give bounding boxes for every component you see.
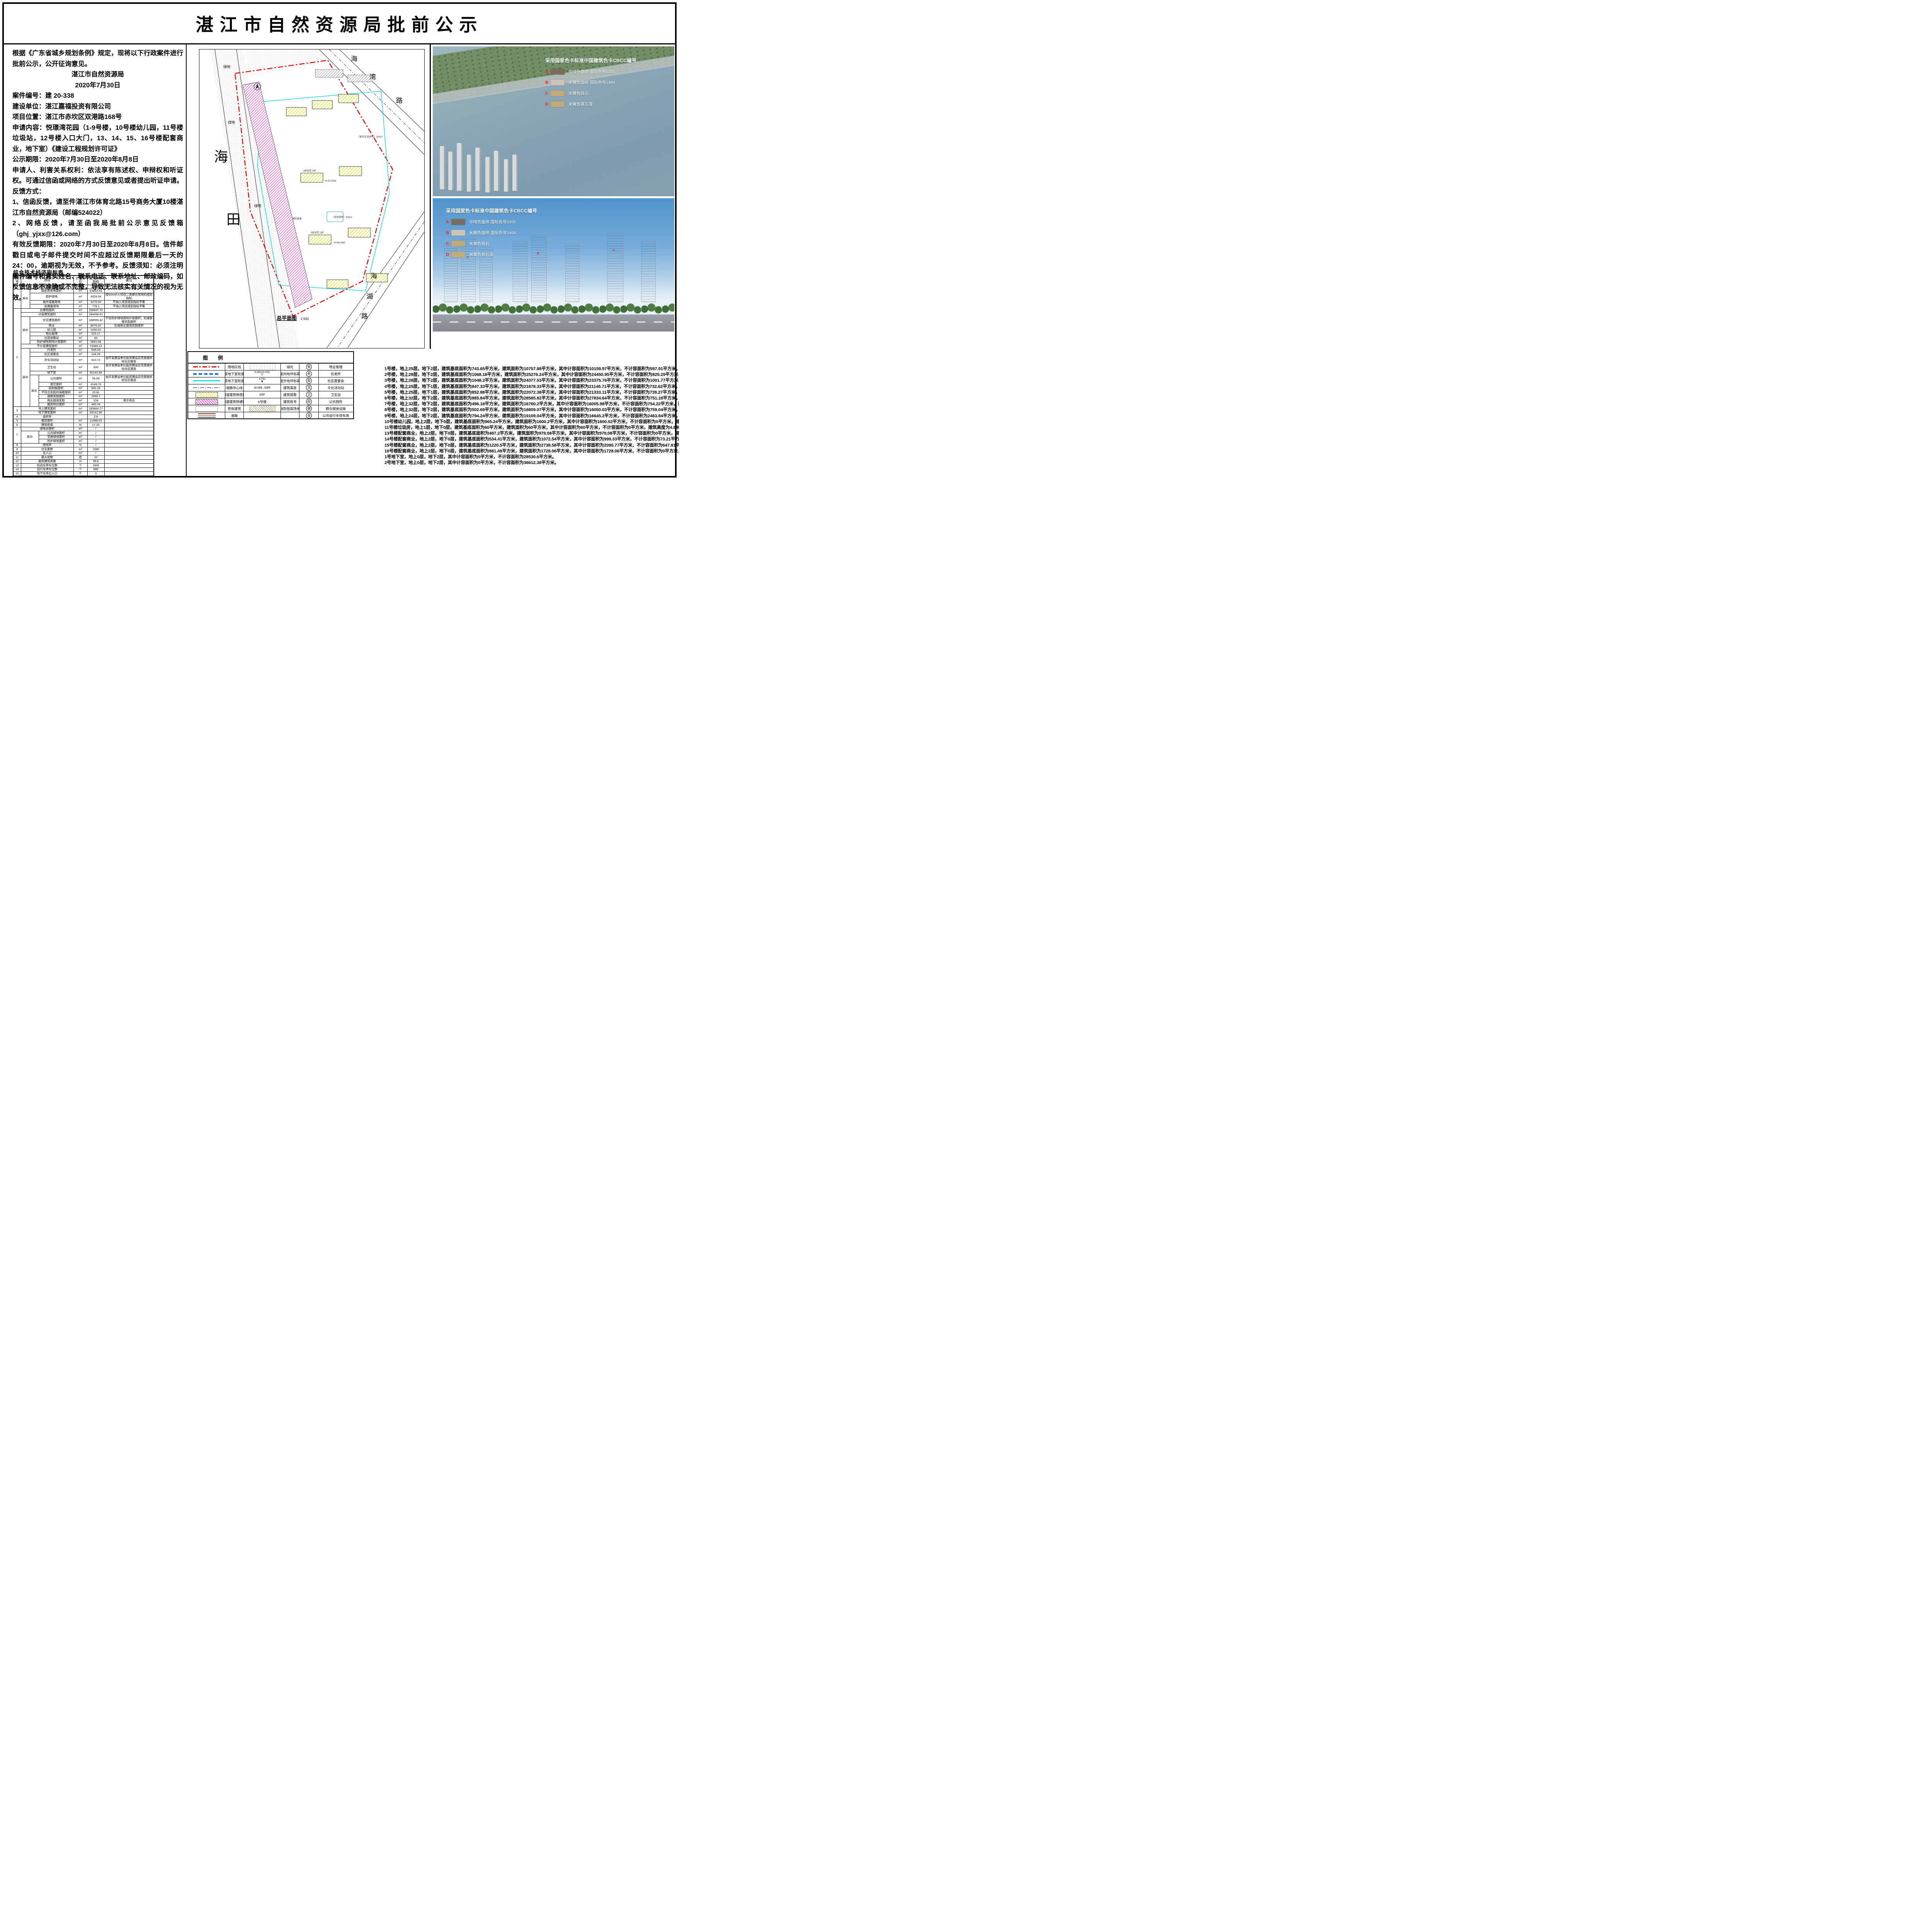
table-cell: 4029.34: [87, 293, 104, 300]
legend-label-cell: 拟建建筑物塔楼: [225, 391, 244, 398]
table-cell: m²: [73, 451, 87, 456]
plan-annotation: H=91.50M: [325, 180, 336, 182]
table-cell: m²: [73, 313, 87, 317]
legend-symbol-cell: 9.350(±0.000)▽: [244, 371, 281, 377]
table-cell: /: [87, 435, 104, 439]
color-legend: 采用国家色卡标准中国建筑色卡CBCC编号A中啡色面砖 国际色号0205B米黄色面…: [545, 56, 669, 112]
table-cell: [73, 415, 87, 419]
table-cell: 其中: [21, 348, 30, 407]
table-cell: [104, 415, 154, 419]
table-row: 防护绿地m²4029.34按50%计入项目二类居住用地的规划指标: [13, 293, 154, 300]
table-cell: 1900: [87, 464, 104, 468]
green-label: 绿地: [254, 204, 261, 208]
circled-facility-icon: 居: [306, 378, 312, 384]
table-cell: [104, 451, 154, 456]
street-trees: [433, 302, 674, 315]
table-cell: [104, 352, 154, 357]
legend-icon-cell: 老: [299, 371, 319, 377]
building-spec-line: 10号楼幼儿园，地上2层，地下0层，建筑基底面积为965.24平方米，建筑面积为…: [384, 419, 672, 425]
table-cell: 公共绿地面积: [39, 431, 73, 435]
table-cell: m²: [73, 435, 87, 439]
building-spec-line: 3号楼，地上28层，地下2层，建筑基底面积为1048.2平方米，建筑面积为243…: [384, 378, 672, 384]
notice-field-label: 申请内容：: [12, 124, 46, 131]
color-legend-title: 采用国家色卡标准中国建筑色卡CBCC编号: [545, 56, 669, 64]
color-legend-item: C米黄色挂石: [446, 241, 573, 246]
color-key-letter: A: [446, 220, 451, 224]
table-cell: 宅旁绿地面积: [39, 435, 73, 439]
table-cell: [104, 394, 154, 399]
table-cell: 城市道路用地: [30, 300, 73, 304]
tower: [475, 148, 481, 191]
legend-label-cell: 社区居委会: [319, 377, 353, 384]
table-cell: 193804.77: [87, 407, 104, 411]
table-cell: 其中: [30, 375, 39, 407]
legend-label-cell: 建筑层数: [281, 391, 299, 398]
color-label: 中啡色面砖 国际色号0205: [469, 219, 516, 225]
table-cell: /: [87, 443, 104, 447]
legend-label-cell: 群众健身设施: [319, 405, 353, 412]
legend-icon-cell: 居: [299, 377, 319, 384]
table-cell: 8076.92: [87, 324, 104, 328]
table-row: 地下建筑面积m²65142.98: [13, 411, 154, 415]
table-cell: [104, 403, 154, 407]
table-cell: m²: [73, 439, 87, 444]
table-cell: 14: [13, 467, 21, 472]
table-cell: 410.72: [87, 356, 104, 364]
level-triangle-icon: ▽: [261, 373, 263, 376]
table-cell: [104, 456, 154, 460]
notice-paragraph: 申请内容：悦璟湾花园（1-9号楼，10号楼幼儿园，11号楼垃圾站，12号楼入口大…: [12, 122, 183, 155]
table-row: 防护绿地用地计容面积m²5641.08: [13, 340, 154, 344]
table-cell: m²: [73, 419, 87, 423]
green-strip-north: [246, 49, 327, 76]
legend-symbol-dashdot: [193, 388, 220, 388]
table-row: 垃圾收集站m²60: [13, 336, 154, 340]
table-cell: 按50%计入项目二类居住用地的规划指标: [104, 293, 154, 300]
legend-icon-cell: 厕: [299, 398, 319, 405]
table-cell: [104, 371, 154, 375]
table-cell: [104, 435, 154, 439]
legend-label-cell: 卫生站: [319, 391, 353, 398]
table-row: 2总建筑面积m²258947.75: [13, 308, 154, 313]
notice-paragraph: 1、信函反馈，请至件湛江市体育北路15号商务大厦10楼湛江市自然资源局（邮编52…: [12, 197, 183, 218]
header: 湛江市自然资源局批前公示: [4, 4, 675, 43]
table-cell: [104, 439, 154, 444]
color-key-letter: D: [446, 252, 451, 257]
color-label: 米黄色真石漆: [469, 252, 493, 257]
parking-block: [315, 70, 343, 77]
table-cell: 其中: [21, 289, 30, 309]
table-row: 城市道路用地m²3275.03不纳入项目规划指标平衡: [13, 300, 154, 304]
legend-symbol-hatch-magenta: [196, 399, 218, 405]
color-swatch: [551, 69, 565, 75]
table-cell: 74489.14: [87, 344, 104, 348]
road-label-char: 湾: [369, 73, 376, 81]
legend-symbol-blue-dash: [193, 373, 220, 375]
table-row: 其中公共绿地面积m²/: [13, 431, 154, 435]
legend-label-cell: 室内地坪标高: [281, 371, 299, 377]
tower: [494, 151, 500, 191]
table-row: 其中规划净用地面积m²63863.53: [13, 289, 154, 293]
table-cell: [104, 340, 154, 344]
legend-symbol-cell: [188, 391, 225, 398]
table-cell: 63863.53: [87, 289, 104, 293]
building-spec-line: 14号楼配套商业，地上2层，地下0层，建筑基底面积为534.41平方米，建筑面积…: [384, 437, 672, 442]
table-cell: 物业管理: [30, 332, 73, 336]
table-cell: [104, 348, 154, 352]
circled-facility-icon: 厕: [306, 399, 312, 405]
road-centerline-bottom: [337, 222, 424, 348]
table-cell: 17.25: [87, 423, 104, 427]
color-key-letter: B: [545, 80, 551, 85]
table-cell: 104: [87, 399, 104, 403]
plan-caption: 总平面图 1:500: [277, 315, 309, 321]
table-cell: [104, 407, 154, 411]
table-cell: 幼儿园: [30, 328, 73, 332]
legend-symbol-cell: [244, 412, 281, 419]
tower: [512, 155, 518, 191]
facade-marker: C: [613, 249, 615, 252]
tower: [440, 146, 446, 189]
legend-symbol-hatch-yellow: [196, 392, 218, 398]
circled-facility-icon: 物: [306, 364, 312, 370]
table-cell: 由开发建设单位投资建设且无偿提供给社区服务: [104, 375, 154, 382]
table-cell: m²: [73, 328, 87, 332]
table-cell: 4148.76: [87, 382, 104, 387]
table-cell: 自行车停车位数: [21, 467, 73, 472]
table-cell: 7: [13, 427, 21, 443]
table-cell: /: [87, 427, 104, 431]
column-divider-right: [430, 43, 431, 349]
notice-text-block: 根据《广东省城乡规划条例》规定，现将以下行政案件进行批前公示，公开征询意见。湛江…: [12, 48, 183, 303]
table-cell: [104, 285, 154, 289]
legend-symbol-hatch-gray: [249, 406, 276, 412]
table-cell: [104, 472, 154, 476]
table-cell: m²: [73, 300, 87, 304]
table-cell: 60: [87, 336, 104, 340]
legend-symbol-cell: [188, 398, 225, 405]
table-row: 计容建筑面积m²184458.61: [13, 313, 154, 317]
legend-icon-cell: 自: [299, 412, 319, 419]
plan-annotation: 消防通道: [292, 217, 302, 220]
street-road: [433, 314, 674, 331]
table-cell: 住宅建筑面积: [30, 316, 73, 324]
notice-field-label: 项目位置：: [12, 113, 45, 121]
plan-annotation: （活动场所）638㎡: [332, 216, 352, 219]
table-row: 13机动车停车位数个1900: [13, 464, 154, 468]
table-row: 其中公共厕所m²55.69由开发建设单位投资建设且无偿提供给社区服务: [13, 375, 154, 382]
table-cell: [104, 308, 154, 313]
table-cell: m²: [73, 364, 87, 371]
color-key-letter: C: [545, 91, 551, 96]
table-cell: 公共厕所: [39, 375, 73, 382]
render-aerial: 采用国家色卡标准中国建筑色卡CBCC编号A中啡色面砖 国际色号0205B米黄色面…: [433, 46, 674, 196]
road-label-char: 海: [351, 55, 357, 63]
table-cell: 258947.75: [87, 308, 104, 313]
notice-paragraph: 公示期限：2020年7月30日至2020年8月8日: [12, 154, 183, 165]
legend-symbol-txt-28f: 28F: [259, 393, 265, 397]
table-cell: 3: [13, 407, 21, 415]
table-row: 10总人口m²/: [13, 451, 154, 456]
circled-facility-icon: 老: [306, 371, 312, 377]
legend-symbol-cell: [188, 412, 225, 419]
legend-symbol-cell: [188, 384, 225, 391]
building-spec-line: 6号楼，地上32层，地下2层，建筑基底面积为885.84平方米，建筑面积为285…: [384, 396, 672, 401]
table-cell: 架空面积: [39, 382, 73, 387]
legend-symbol-cyan-solid: [193, 380, 220, 381]
color-key-letter: B: [446, 231, 451, 235]
table-cell: 6: [13, 423, 21, 427]
color-label: 米黄色面砖 国际色号1464: [568, 80, 615, 85]
table-cell: [104, 427, 154, 431]
table-cell: m²: [73, 304, 87, 309]
table-cell: [104, 382, 154, 387]
tower: [641, 241, 655, 302]
table-cell: m²: [73, 308, 87, 313]
legend-icon-cell: 健: [299, 405, 319, 412]
table-cell: 不纳入项目规划指标平衡: [104, 300, 154, 304]
tower: [448, 151, 454, 190]
table-row: 7绿地总面积m²/: [13, 427, 154, 431]
table-row: 11最大层数层32: [13, 456, 154, 460]
table-row: 商业m²8076.92扣减商业烟道奖励面积: [13, 324, 154, 328]
table-cell: 99.9: [87, 459, 104, 464]
site-plan-drawing: 海 湾 路 海 田 海 湖 路 绿地 绿地 绿地 2栋住宅 29F H=91.5…: [199, 49, 424, 348]
tower: [467, 155, 473, 192]
table-cell: 建筑密度: [21, 423, 73, 427]
plan-annotation: H=88.50M: [334, 241, 345, 244]
legend-label-cell: 托老所: [319, 371, 353, 377]
table-cell: m²: [73, 348, 87, 352]
legend-table: 用地红线绿化物物业管理一层地下室轮廓线9.350(±0.000)▽室内地坪标高老…: [188, 363, 353, 418]
table-row: 不计容建筑面积m²74489.14: [13, 344, 154, 348]
table-cell: 692.16: [87, 386, 104, 391]
color-label: 米黄色面砖 国际色号1464: [469, 230, 516, 236]
legend-symbol-cell: [188, 377, 225, 384]
table-cell: 995: [87, 467, 104, 472]
table-cell: 525.17: [87, 332, 104, 336]
road-label-char: 湖: [366, 293, 373, 300]
table-cell: 71946: [87, 285, 104, 289]
column-divider-left: [186, 43, 187, 476]
table-cell: 20.81: [87, 391, 104, 395]
legend-symbol-cell: [244, 405, 281, 412]
table-cell: /: [87, 431, 104, 435]
building-spec-line: 2号楼，地上29层，地下2层，建筑基底面积为1068.18平方米，建筑面积为25…: [384, 372, 672, 378]
table-row: 12最高建筑高度m99.9: [13, 459, 154, 464]
notice-paragraph: 湛江市自然资源局: [12, 69, 183, 80]
table-cell: 用于商业: [104, 399, 154, 403]
notice-field-label: 反馈方式：: [12, 188, 45, 195]
legend-label-cell: 绿化: [281, 364, 299, 371]
table-cell: 3: [87, 472, 104, 476]
building-spec-block: 1号楼，地上25层，地下2层，建筑基底面积为743.65平方米，建筑面积为107…: [384, 366, 672, 466]
table-cell: 服务阳台面积: [39, 403, 73, 407]
public-notice-poster: 湛江市自然资源局批前公示 根据《广东省城乡规划条例》规定，现将以下行政案件进行批…: [0, 0, 679, 480]
table-cell: 由开发建设单位投资建设且无偿提供给社区服务: [104, 364, 154, 371]
table-cell: 个: [73, 467, 87, 472]
table-cell: 发展备用地: [30, 304, 73, 309]
table-cell: 不计容建筑面积: [21, 344, 73, 348]
building-spec-line: 4号楼，地上25层，地下1层，建筑基底面积为847.33平方米，建筑面积为218…: [384, 384, 672, 390]
notice-paragraph: 2、网络反馈，请至函我局批前公示意见反馈箱（ghj_yjxx@126.com）: [12, 218, 183, 239]
circled-facility-icon: 健: [306, 406, 312, 411]
table-header-cell: 项目: [21, 275, 73, 285]
table-cell: 防护绿地面积: [39, 439, 73, 444]
notice-paragraph: 根据《广东省城乡规划条例》规定，现将以下行政案件进行批前公示，公开征询意见。: [12, 48, 183, 69]
color-label: 中啡色面砖 国际色号0205: [568, 69, 615, 75]
building-spec-line: 11号楼垃圾房，地上1层，地下0层，建筑基底面积为60平方米，建筑面积为60平方…: [384, 425, 672, 431]
color-swatch: [551, 80, 565, 85]
table-cell: 个: [73, 464, 87, 468]
page-title: 湛江市自然资源局批前公示: [196, 11, 483, 36]
legend-symbol-red-dash: [193, 366, 220, 368]
legend-icon-cell: 物: [299, 364, 319, 371]
legend-symbol-cell: [188, 405, 225, 412]
building-spec-line: 16号楼配套商业，地上2层，地下0层，建筑基底面积为881.49平方米，建筑面积…: [384, 449, 672, 454]
table-cell: 住宅套数: [21, 447, 73, 452]
table-row: 8绿地率%/: [13, 443, 154, 447]
table-row: 幼儿园m²1600.02: [13, 328, 154, 332]
table-cell: m²: [73, 394, 87, 399]
table-cell: [104, 447, 154, 452]
color-key-letter: A: [545, 70, 551, 74]
building-spec-line: 1号楼，地上25层，地下2层，建筑基底面积为743.65平方米，建筑面积为107…: [384, 366, 672, 372]
table-cell: 最高建筑高度: [21, 459, 73, 464]
table-cell: 绿地率: [21, 443, 73, 447]
legend-label-cell: 原有建筑: [225, 405, 244, 412]
table-cell: 55.69: [87, 375, 104, 382]
table-cell: m: [73, 459, 87, 464]
table-row: 14自行车停车位数个995: [13, 467, 154, 472]
legend-symbol-lvl-out: 6.750▼: [259, 378, 265, 384]
table-cell: [104, 313, 154, 317]
table-cell: 托老所: [30, 348, 73, 352]
table-cell: m²: [73, 407, 87, 411]
legend-label-cell: 物业管理: [319, 364, 353, 371]
table-cell: m²: [73, 324, 87, 328]
table-cell: 13: [13, 464, 21, 468]
table-cell: 总人口: [21, 451, 73, 456]
table-cell: 1: [13, 285, 21, 308]
table-cell: [104, 464, 154, 468]
building-spec-line: 13号楼配套商业，地上2层，地下0层，建筑基底面积为487.2平方米，建筑面积为…: [384, 431, 672, 437]
plan-annotation: 2栋住宅 29F: [303, 169, 316, 172]
road-label-char: 海: [214, 149, 228, 165]
legend-label-cell: 室外地坪标高: [281, 377, 299, 384]
table-cell: 2.8: [87, 415, 104, 419]
table-cell: [104, 332, 154, 336]
legend-label-cell: 文化活动站: [319, 384, 353, 391]
table-cell: [104, 459, 154, 464]
building-spec-line: 5号楼，地上25层，地下1层，建筑基底面积为852.88平方米，建筑面积为220…: [384, 390, 672, 396]
table-cell: 10: [13, 451, 21, 456]
table-cell: 2560.7: [87, 394, 104, 399]
building-spec-line: 2号地下室，地上0层，地下2层，其中计容面积为0平方米，不计容面积为36612.…: [384, 460, 672, 466]
table-cell: [104, 419, 154, 423]
table-cell: m²: [73, 344, 87, 348]
table-cell: m²: [73, 411, 87, 415]
circled-facility-icon: 活: [306, 385, 312, 391]
color-legend-item: A中啡色面砖 国际色号0205: [545, 69, 669, 75]
color-key-letter: C: [446, 241, 451, 246]
legend-symbol-cell: 6号楼: [244, 398, 281, 405]
table-row: 其中托老所m²506.59: [13, 348, 154, 352]
table-row: 15地下车库出入口个3: [13, 472, 154, 476]
building-spec-line: 15号楼配套商业，地上2层，地下0层，建筑基底面积为1220.5平方米，建筑面积…: [384, 443, 672, 449]
legend-panel: 图例 用地红线绿化物物业管理一层地下室轮廓线9.350(±0.000)▽室内地坪…: [187, 351, 354, 419]
table-cell: 65142.98: [87, 411, 104, 415]
color-label: 米黄色挂石: [469, 241, 490, 246]
table-cell: [104, 328, 154, 332]
table-cell: m²: [73, 352, 87, 357]
table-cell: 104.29: [87, 352, 104, 357]
table-cell: 地下车库出入口: [21, 472, 73, 476]
color-key-letter: D: [545, 102, 551, 107]
table-cell: m²: [73, 332, 87, 336]
color-legend-item: C米黄色挂石: [545, 90, 669, 96]
color-legend-item: B米黄色面砖 国际色号1464: [446, 230, 573, 236]
table-cell: m²: [73, 285, 87, 289]
table-cell: m²: [73, 293, 87, 300]
legend-title: 图例: [203, 354, 233, 361]
table-row: 社区居委会m²104.29: [13, 352, 154, 357]
color-label: 米黄色真石漆: [568, 101, 593, 107]
green-label: 绿地: [223, 65, 230, 69]
legend-label-cell: 建筑栋号: [281, 398, 299, 405]
legend-symbol-lvl-in: 9.350(±0.000)▽: [254, 371, 270, 377]
table-cell: m²: [73, 371, 87, 375]
building-spec-line: 9号楼，地上24层，地下2层，建筑基底面积为794.24平方米，建筑面积为191…: [384, 413, 672, 419]
table-cell: m²: [73, 431, 87, 435]
table-cell: 442.44: [87, 403, 104, 407]
table-row: 5基底面积m²11388.03: [13, 419, 154, 423]
table-cell: 规划净用地面积: [30, 289, 73, 293]
table-header-cell: 计量单位: [73, 275, 87, 285]
table-cell: 基底面积: [21, 419, 73, 423]
notice-paragraph: 反馈方式：: [12, 186, 183, 197]
legend-label-cell: 道路: [225, 412, 244, 419]
notice-field-label: 公示期限：: [12, 156, 45, 163]
table-cell: [104, 467, 154, 472]
color-swatch: [551, 90, 565, 96]
table-cell: 垃圾收集站: [30, 336, 73, 340]
color-legend-item: A中啡色面砖 国际色号0205: [446, 219, 573, 225]
legend-label-cell: 用地红线: [225, 364, 244, 371]
table-cell: 绿地总面积: [21, 427, 73, 431]
table-cell: 地下室: [30, 371, 73, 375]
legend-label-cell: 公共自行车停车场: [319, 412, 353, 419]
legend-symbol-cell: [188, 371, 225, 377]
table-row: 物业管理m²525.17: [13, 332, 154, 336]
table-cell: 2: [13, 308, 21, 407]
table-cell: 机动车停车位数: [21, 464, 73, 468]
building-spec-line: 8号楼，地上32层，地下2层，建筑基底面积为502.69平方米，建筑面积为168…: [384, 407, 672, 413]
color-legend-item: D米黄色真石漆: [545, 101, 669, 107]
table-row: 地下室m²65142.98: [13, 371, 154, 375]
table-cell: 层: [73, 456, 87, 460]
table-cell: [104, 443, 154, 447]
table-cell: 商业: [30, 324, 73, 328]
color-legend-item: B米黄色面砖 国际色号1464: [545, 80, 669, 85]
table-header-row: 序号项目计量单位建筑单体指标备注: [13, 275, 154, 285]
table-cell: 总建筑面积: [21, 308, 73, 313]
notice-paragraph: 建设单位：湛江嘉福投资有限公司: [12, 101, 183, 112]
table-row: 发展备用地m²778.1不纳入项目规划指标平衡: [13, 304, 154, 309]
table-row: 6建筑密度%17.25: [13, 423, 154, 427]
parking-block: [348, 75, 372, 82]
table-cell: [104, 431, 154, 435]
